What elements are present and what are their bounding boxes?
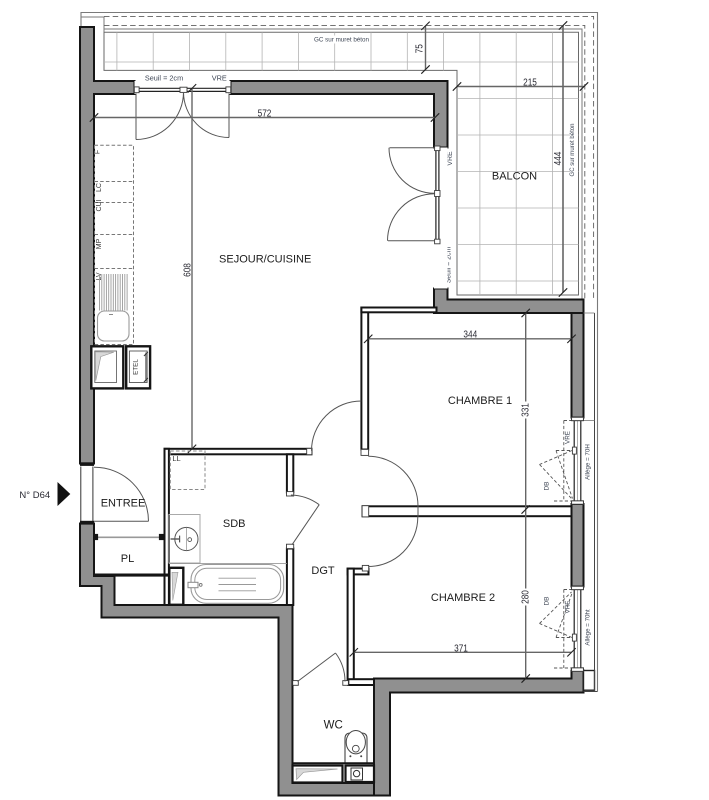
svg-text:Seuil = 2cm: Seuil = 2cm bbox=[145, 73, 183, 82]
svg-text:331: 331 bbox=[521, 403, 532, 417]
svg-text:LL: LL bbox=[172, 454, 180, 463]
svg-text:GC sur muret béton: GC sur muret béton bbox=[569, 123, 576, 176]
svg-text:VRE: VRE bbox=[212, 73, 227, 82]
svg-text:F: F bbox=[95, 150, 102, 154]
svg-text:BALCON: BALCON bbox=[492, 170, 537, 182]
svg-text:SEJOUR/CUISINE: SEJOUR/CUISINE bbox=[219, 253, 311, 265]
svg-text:608: 608 bbox=[183, 263, 194, 277]
svg-text:DGT: DGT bbox=[311, 565, 335, 577]
svg-text:CHAMBRE 1: CHAMBRE 1 bbox=[448, 395, 512, 407]
svg-text:SDB: SDB bbox=[223, 518, 246, 530]
svg-text:N° D64: N° D64 bbox=[19, 490, 50, 501]
svg-text:DB: DB bbox=[544, 481, 551, 490]
svg-text:MP: MP bbox=[96, 238, 103, 249]
svg-text:CHAMBRE 2: CHAMBRE 2 bbox=[431, 592, 495, 604]
svg-text:Allège = 70ht: Allège = 70ht bbox=[585, 609, 592, 646]
svg-text:WC: WC bbox=[324, 719, 343, 731]
svg-text:215: 215 bbox=[523, 77, 537, 88]
svg-text:ENTREE: ENTREE bbox=[101, 498, 146, 510]
svg-text:LC: LC bbox=[96, 183, 103, 192]
svg-text:VRE: VRE bbox=[564, 431, 571, 444]
svg-text:PL: PL bbox=[121, 553, 134, 565]
svg-text:VRE: VRE bbox=[447, 151, 454, 166]
svg-text:371: 371 bbox=[454, 644, 468, 655]
svg-text:75: 75 bbox=[414, 44, 425, 54]
svg-text:ETEL: ETEL bbox=[133, 359, 140, 375]
svg-text:280: 280 bbox=[521, 590, 532, 604]
svg-text:344: 344 bbox=[463, 330, 477, 341]
svg-text:572: 572 bbox=[258, 109, 272, 120]
svg-text:Allège = 70H: Allège = 70H bbox=[585, 444, 592, 480]
svg-text:GC sur muret béton: GC sur muret béton bbox=[314, 37, 369, 44]
svg-text:VRE: VRE bbox=[564, 601, 571, 614]
svg-text:444: 444 bbox=[553, 151, 564, 165]
svg-text:DB: DB bbox=[544, 596, 551, 605]
svg-text:CUI: CUI bbox=[96, 199, 103, 211]
